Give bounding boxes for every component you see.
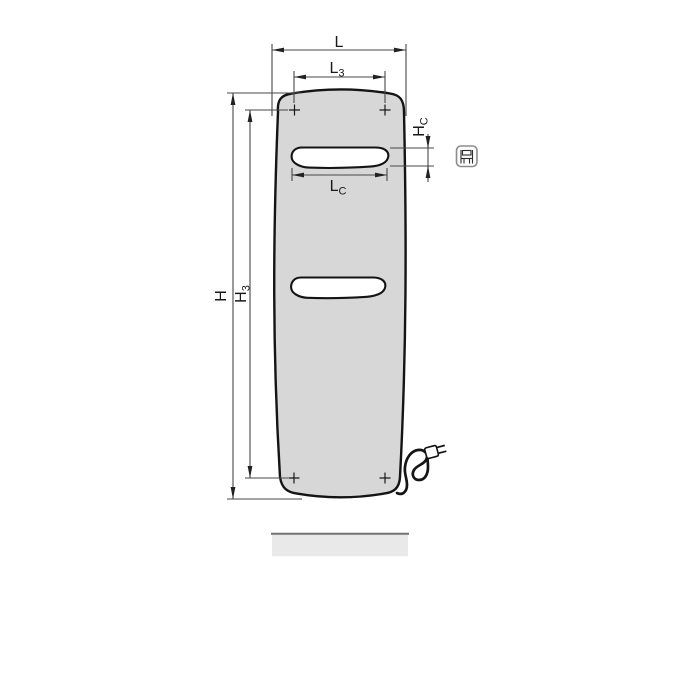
electric-connection-icon bbox=[457, 146, 478, 167]
power-cable bbox=[397, 443, 447, 494]
dimension-H3-label: H3 bbox=[233, 285, 253, 303]
top-cutout-slot bbox=[292, 148, 389, 168]
floor-bar-fill bbox=[272, 535, 408, 557]
plug-prong-top bbox=[437, 445, 445, 447]
diagram-canvas: L L3 LC H H3 HC bbox=[0, 0, 700, 700]
dimension-HC-label: HC bbox=[411, 117, 431, 137]
radiator-dimension-diagram: L L3 LC H H3 HC bbox=[0, 0, 700, 700]
middle-cutout-slot bbox=[291, 278, 385, 299]
dimension-H-label: H bbox=[213, 290, 230, 302]
power-plug bbox=[424, 443, 447, 459]
floor-bar bbox=[271, 534, 409, 557]
plug-prong-bottom bbox=[438, 451, 446, 453]
radiator-body bbox=[274, 90, 405, 498]
dimension-L3-label: L3 bbox=[329, 60, 344, 80]
dimension-L-label: L bbox=[335, 34, 344, 51]
